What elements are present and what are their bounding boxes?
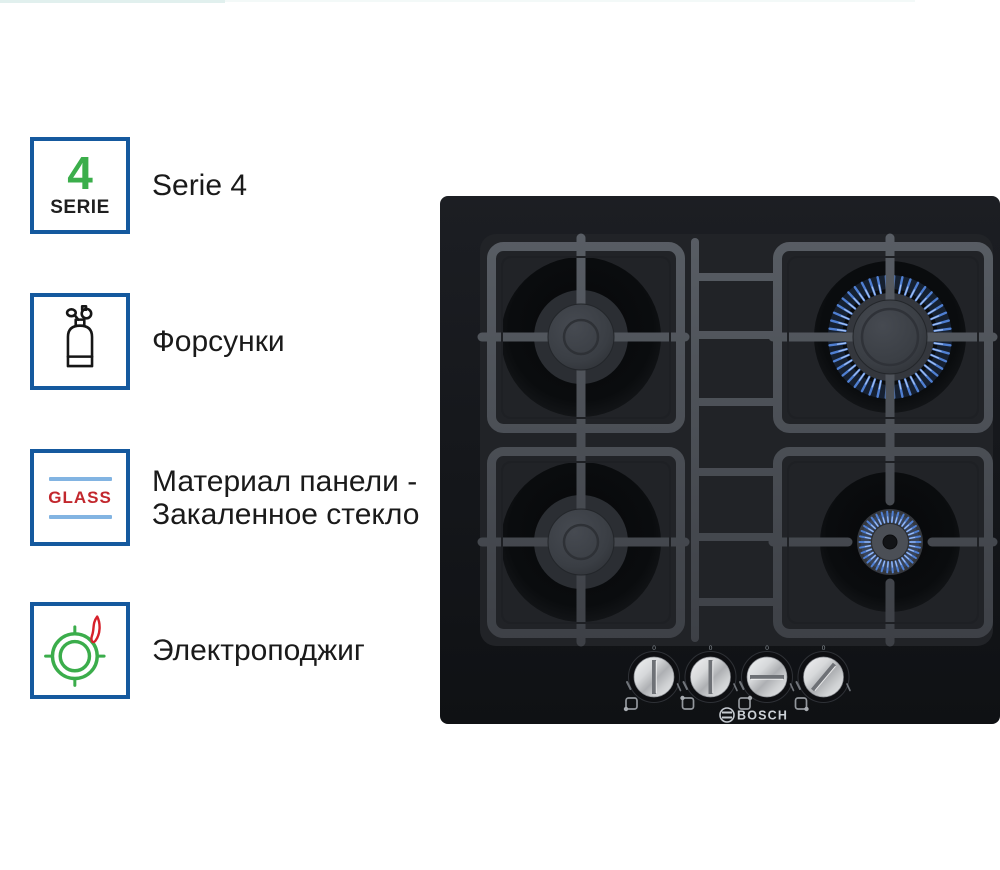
electric-ignition-badge (30, 602, 130, 699)
knob-indicator (654, 660, 656, 694)
gas-cylinder-icon (37, 299, 123, 385)
top-edge-artifact-faint (225, 0, 915, 2)
product-card: 4 SERIE Serie 4 Форсунки GLASS Материал … (0, 0, 1000, 870)
knob-zero-label: 0 (652, 645, 656, 652)
feature-label-material: Материал панели - Закаленное стекло (152, 449, 419, 546)
serie-4-badge: 4 SERIE (30, 137, 130, 234)
product-photo-gas-hob: 0000 BOSCH (440, 196, 1000, 724)
knob-indicator (750, 677, 784, 679)
top-edge-artifact (0, 0, 225, 3)
glass-word: GLASS (48, 488, 112, 508)
glass-line-bottom (49, 515, 112, 519)
knob-zero-label: 0 (822, 645, 826, 652)
knob-zero-label: 0 (709, 645, 713, 652)
glass-line-top (49, 477, 112, 481)
feature-label-ignition-text: Электроподжиг (152, 634, 365, 667)
feature-label-serie-text: Serie 4 (152, 169, 247, 202)
electric-ignition-icon (37, 608, 123, 694)
feature-label-material-line2: Закаленное стекло (152, 498, 419, 531)
glass-badge: GLASS (30, 449, 130, 546)
burner-front-left (548, 509, 614, 575)
feature-label-nozzles-text: Форсунки (152, 325, 285, 358)
burner-front-right (872, 524, 909, 561)
bosch-wordmark: BOSCH (737, 709, 788, 723)
feature-label-ignition: Электроподжиг (152, 602, 365, 699)
spark-flame-icon (91, 616, 99, 641)
knob-zero-label: 0 (765, 645, 769, 652)
gas-nozzles-badge (30, 293, 130, 390)
feature-label-serie: Serie 4 (152, 137, 247, 234)
feature-label-nozzles: Форсунки (152, 293, 285, 390)
burner-back-right (853, 300, 927, 374)
feature-label-material-line1: Материал панели - (152, 465, 419, 498)
burner-back-left (548, 304, 614, 370)
serie-badge-caption: SERIE (50, 197, 110, 219)
serie-badge-number: 4 (67, 152, 93, 196)
knob-indicator (711, 660, 713, 694)
